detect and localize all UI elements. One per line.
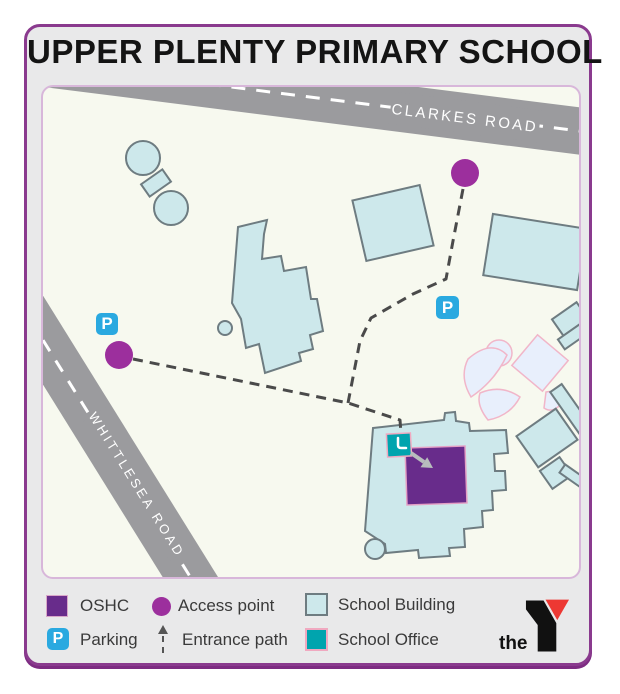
building-square <box>352 185 433 261</box>
legend-access-point-swatch <box>152 597 171 616</box>
whittlesea-road: WHITTLESEA ROAD <box>43 279 227 577</box>
building-tank <box>126 141 160 175</box>
legend-school-office-swatch <box>305 628 328 651</box>
legend-oshc-swatch <box>46 595 68 617</box>
building-tank-small <box>218 321 232 335</box>
map-card: UPPER PLENTY PRIMARY SCHOOL CLARKES ROAD <box>24 24 592 666</box>
map-canvas: CLARKES ROAD WHITTLESEA ROAD <box>43 87 579 577</box>
page-title: UPPER PLENTY PRIMARY SCHOOL <box>27 33 589 71</box>
playground-markings <box>464 335 568 420</box>
parking-marker-east: P <box>436 296 459 319</box>
building-central <box>232 220 323 373</box>
legend-access-point-label: Access point <box>178 596 274 616</box>
access-point-west <box>105 341 133 369</box>
legend-school-building-swatch <box>305 593 328 616</box>
legend-school-office-label: School Office <box>338 630 439 650</box>
playground-leaf <box>479 389 520 420</box>
school-map: CLARKES ROAD WHITTLESEA ROAD <box>41 85 581 579</box>
legend-school-building-label: School Building <box>338 595 455 615</box>
parking-glyph: P <box>101 314 112 333</box>
building-tank-small <box>365 539 385 559</box>
legend-parking-label: Parking <box>80 630 138 650</box>
poster: UPPER PLENTY PRIMARY SCHOOL CLARKES ROAD <box>0 0 620 694</box>
legend-entrance-path-swatch <box>156 624 170 654</box>
clarkes-road: CLARKES ROAD <box>43 87 579 142</box>
parking-marker-west: P <box>96 313 118 335</box>
parking-glyph: P <box>442 298 453 317</box>
legend-oshc-label: OSHC <box>80 596 129 616</box>
entrance-arrow-icon <box>156 624 170 654</box>
legend-entrance-path-label: Entrance path <box>182 630 288 650</box>
building-tank <box>154 191 188 225</box>
y-logo-icon <box>524 599 570 658</box>
whittlesea-road-label: WHITTLESEA ROAD <box>86 409 188 560</box>
legend-parking-swatch: P <box>47 628 69 650</box>
access-point-north <box>451 159 479 187</box>
building-large-east <box>483 214 579 290</box>
